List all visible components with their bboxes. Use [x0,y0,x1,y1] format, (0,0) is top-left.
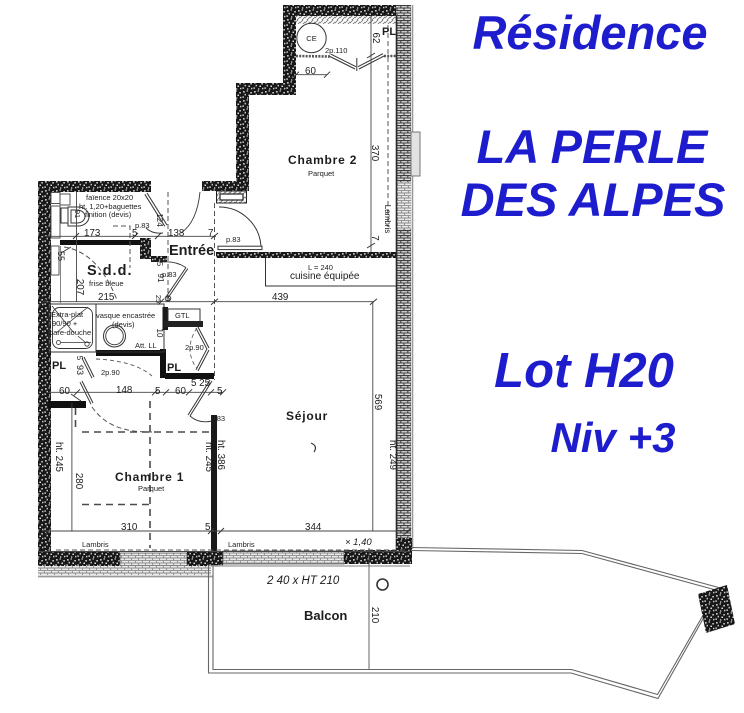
svg-text:280: 280 [73,473,84,490]
svg-text:93: 93 [75,365,85,375]
svg-text:60: 60 [59,386,70,397]
svg-text:148: 148 [116,385,133,396]
svg-text:2p.90: 2p.90 [185,343,204,352]
svg-text:Extra-plat: Extra-plat [51,310,84,319]
svg-text:p.83: p.83 [226,235,241,244]
svg-text:Lot H20: Lot H20 [494,344,674,398]
svg-text:ht. 245: ht. 245 [203,442,214,473]
svg-text:vasque encastrée: vasque encastrée [96,311,155,320]
svg-text:370: 370 [369,145,380,162]
svg-text:Résidence: Résidence [472,6,707,59]
svg-text:Parquet: Parquet [308,169,335,178]
svg-text:S.d.d.: S.d.d. [87,263,132,279]
svg-text:Entrée: Entrée [169,243,214,259]
svg-text:DES ALPES: DES ALPES [461,173,726,226]
svg-text:62: 62 [370,33,381,44]
svg-text:7: 7 [369,235,380,240]
svg-text:5: 5 [132,228,138,239]
svg-text:Att. LL: Att. LL [135,341,157,350]
svg-text:Chambre 1: Chambre 1 [115,470,184,484]
svg-text:PL: PL [52,360,66,372]
svg-text:138: 138 [168,228,185,239]
svg-text:GTL: GTL [175,311,190,320]
svg-text:91: 91 [73,210,82,218]
svg-text:60: 60 [175,386,186,397]
svg-text:(devis): (devis) [112,320,135,329]
svg-text:90/90 +: 90/90 + [52,319,78,328]
svg-text:Chambre 2: Chambre 2 [288,153,357,167]
svg-text:L = 240: L = 240 [308,263,333,272]
svg-text:frise bleue: frise bleue [89,279,124,288]
svg-text:Lambris: Lambris [383,205,392,233]
svg-text:310: 310 [121,522,138,533]
svg-text:ht. 245: ht. 245 [53,442,64,473]
svg-text:124: 124 [155,213,164,227]
svg-text:ht. 386: ht. 386 [215,440,226,471]
svg-text:LA PERLE: LA PERLE [477,120,709,173]
svg-text:finition (devis): finition (devis) [85,210,132,219]
svg-text:60: 60 [305,66,316,77]
svg-text:7: 7 [208,228,213,239]
svg-text:5: 5 [217,386,223,397]
svg-text:PL: PL [382,26,396,38]
svg-text:5: 5 [205,522,211,533]
svg-text:2p.110: 2p.110 [325,46,347,55]
svg-text:5: 5 [155,386,161,397]
svg-text:215: 215 [98,292,115,303]
svg-text:5: 5 [166,294,170,303]
svg-text:569: 569 [372,394,383,410]
svg-text:10: 10 [155,329,164,338]
svg-text:344: 344 [305,522,322,533]
svg-text:5: 5 [155,262,164,267]
svg-text:Séjour: Séjour [286,409,328,423]
svg-text:cuisine équipée: cuisine équipée [290,271,360,282]
svg-text:× 1,40: × 1,40 [345,537,372,548]
svg-text:Niv +3: Niv +3 [551,414,676,461]
svg-text:CE: CE [306,34,316,43]
svg-text:210: 210 [369,607,380,624]
svg-text:Lambris: Lambris [228,540,255,549]
svg-text:2p.90: 2p.90 [101,368,120,377]
svg-text:ht. 249: ht. 249 [387,440,398,470]
svg-text:pare-douche: pare-douche [49,328,91,337]
svg-text:faïence 20x20: faïence 20x20 [86,193,133,202]
svg-text:Lambris: Lambris [82,540,109,549]
svg-text:91: 91 [156,274,165,283]
svg-text:PL: PL [167,362,181,374]
svg-text:5: 5 [75,356,84,361]
svg-text:55: 55 [56,251,66,261]
svg-text:207: 207 [74,279,85,295]
svg-text:173: 173 [84,228,101,239]
svg-text:439: 439 [272,292,288,303]
svg-text:5 25: 5 25 [191,378,211,389]
svg-text:Parquet: Parquet [138,484,165,493]
svg-text:↓83: ↓83 [213,414,225,423]
svg-text:Balcon: Balcon [304,608,347,623]
svg-text:25: 25 [154,295,163,303]
svg-text:2 40 x HT 210: 2 40 x HT 210 [266,575,340,587]
